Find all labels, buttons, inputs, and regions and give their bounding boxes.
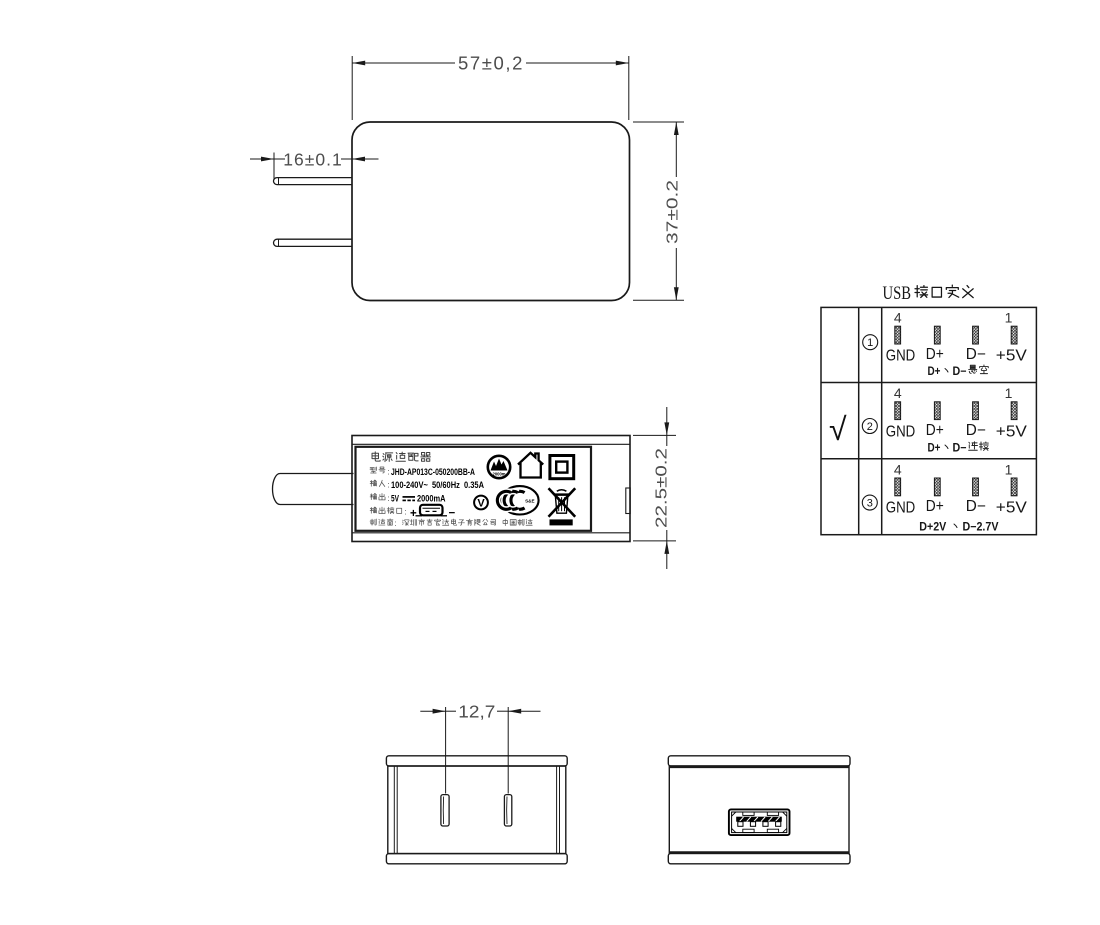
svg-text:GND: GND bbox=[886, 500, 916, 517]
svg-text:GND: GND bbox=[886, 423, 916, 440]
svg-text:2000m: 2000m bbox=[493, 472, 506, 477]
svg-text:1: 1 bbox=[867, 337, 873, 349]
svg-text:D+: D+ bbox=[928, 366, 941, 378]
svg-text:1: 1 bbox=[1005, 310, 1013, 326]
svg-text:D+: D+ bbox=[928, 443, 941, 455]
svg-text::: : bbox=[387, 466, 389, 476]
svg-text:S&E: S&E bbox=[525, 499, 534, 504]
svg-text:D−2.7V: D−2.7V bbox=[963, 522, 999, 534]
svg-text:D+: D+ bbox=[926, 498, 944, 515]
svg-text:57±0,2: 57±0,2 bbox=[458, 53, 524, 74]
svg-text:4: 4 bbox=[894, 385, 902, 401]
svg-text:4: 4 bbox=[894, 461, 902, 477]
svg-text:22.5±0.2: 22.5±0.2 bbox=[653, 448, 670, 528]
svg-text:√: √ bbox=[829, 411, 847, 447]
svg-text:16±0.1: 16±0.1 bbox=[283, 150, 342, 170]
svg-text::: : bbox=[395, 519, 397, 528]
svg-text:D−: D− bbox=[966, 422, 986, 439]
svg-text:D+2V: D+2V bbox=[919, 522, 946, 534]
svg-text:5V: 5V bbox=[391, 494, 400, 504]
svg-text:1: 1 bbox=[1005, 385, 1013, 401]
svg-text:+5V: +5V bbox=[996, 423, 1028, 440]
svg-text:D−: D− bbox=[966, 498, 986, 515]
svg-text:3: 3 bbox=[867, 498, 873, 510]
svg-text:D−: D− bbox=[953, 443, 967, 455]
svg-text:D−: D− bbox=[953, 366, 967, 378]
svg-text:12,7: 12,7 bbox=[458, 702, 495, 722]
svg-text:2000mA: 2000mA bbox=[417, 494, 446, 504]
svg-text::: : bbox=[387, 480, 389, 490]
svg-text:D+: D+ bbox=[926, 346, 944, 363]
svg-text:+5V: +5V bbox=[996, 348, 1028, 365]
svg-text:GND: GND bbox=[886, 348, 916, 365]
svg-text::: : bbox=[387, 493, 389, 503]
svg-text:2: 2 bbox=[867, 421, 873, 433]
svg-text:4: 4 bbox=[894, 310, 902, 326]
svg-text::: : bbox=[404, 507, 406, 517]
svg-text:USB: USB bbox=[883, 283, 912, 304]
svg-text:−: − bbox=[449, 507, 456, 519]
svg-text:D−: D− bbox=[966, 346, 986, 363]
svg-text:+: + bbox=[410, 508, 417, 520]
svg-text:D+: D+ bbox=[926, 422, 944, 439]
svg-text:1: 1 bbox=[1005, 461, 1013, 477]
svg-text:JHD-AP013C-050200BB-A: JHD-AP013C-050200BB-A bbox=[391, 467, 475, 477]
svg-text:V: V bbox=[477, 498, 485, 510]
svg-text:37±0.2: 37±0.2 bbox=[664, 180, 681, 244]
svg-text:100-240V~ 50/60Hz 0.35A: 100-240V~ 50/60Hz 0.35A bbox=[391, 480, 484, 490]
svg-text:+5V: +5V bbox=[996, 500, 1028, 517]
